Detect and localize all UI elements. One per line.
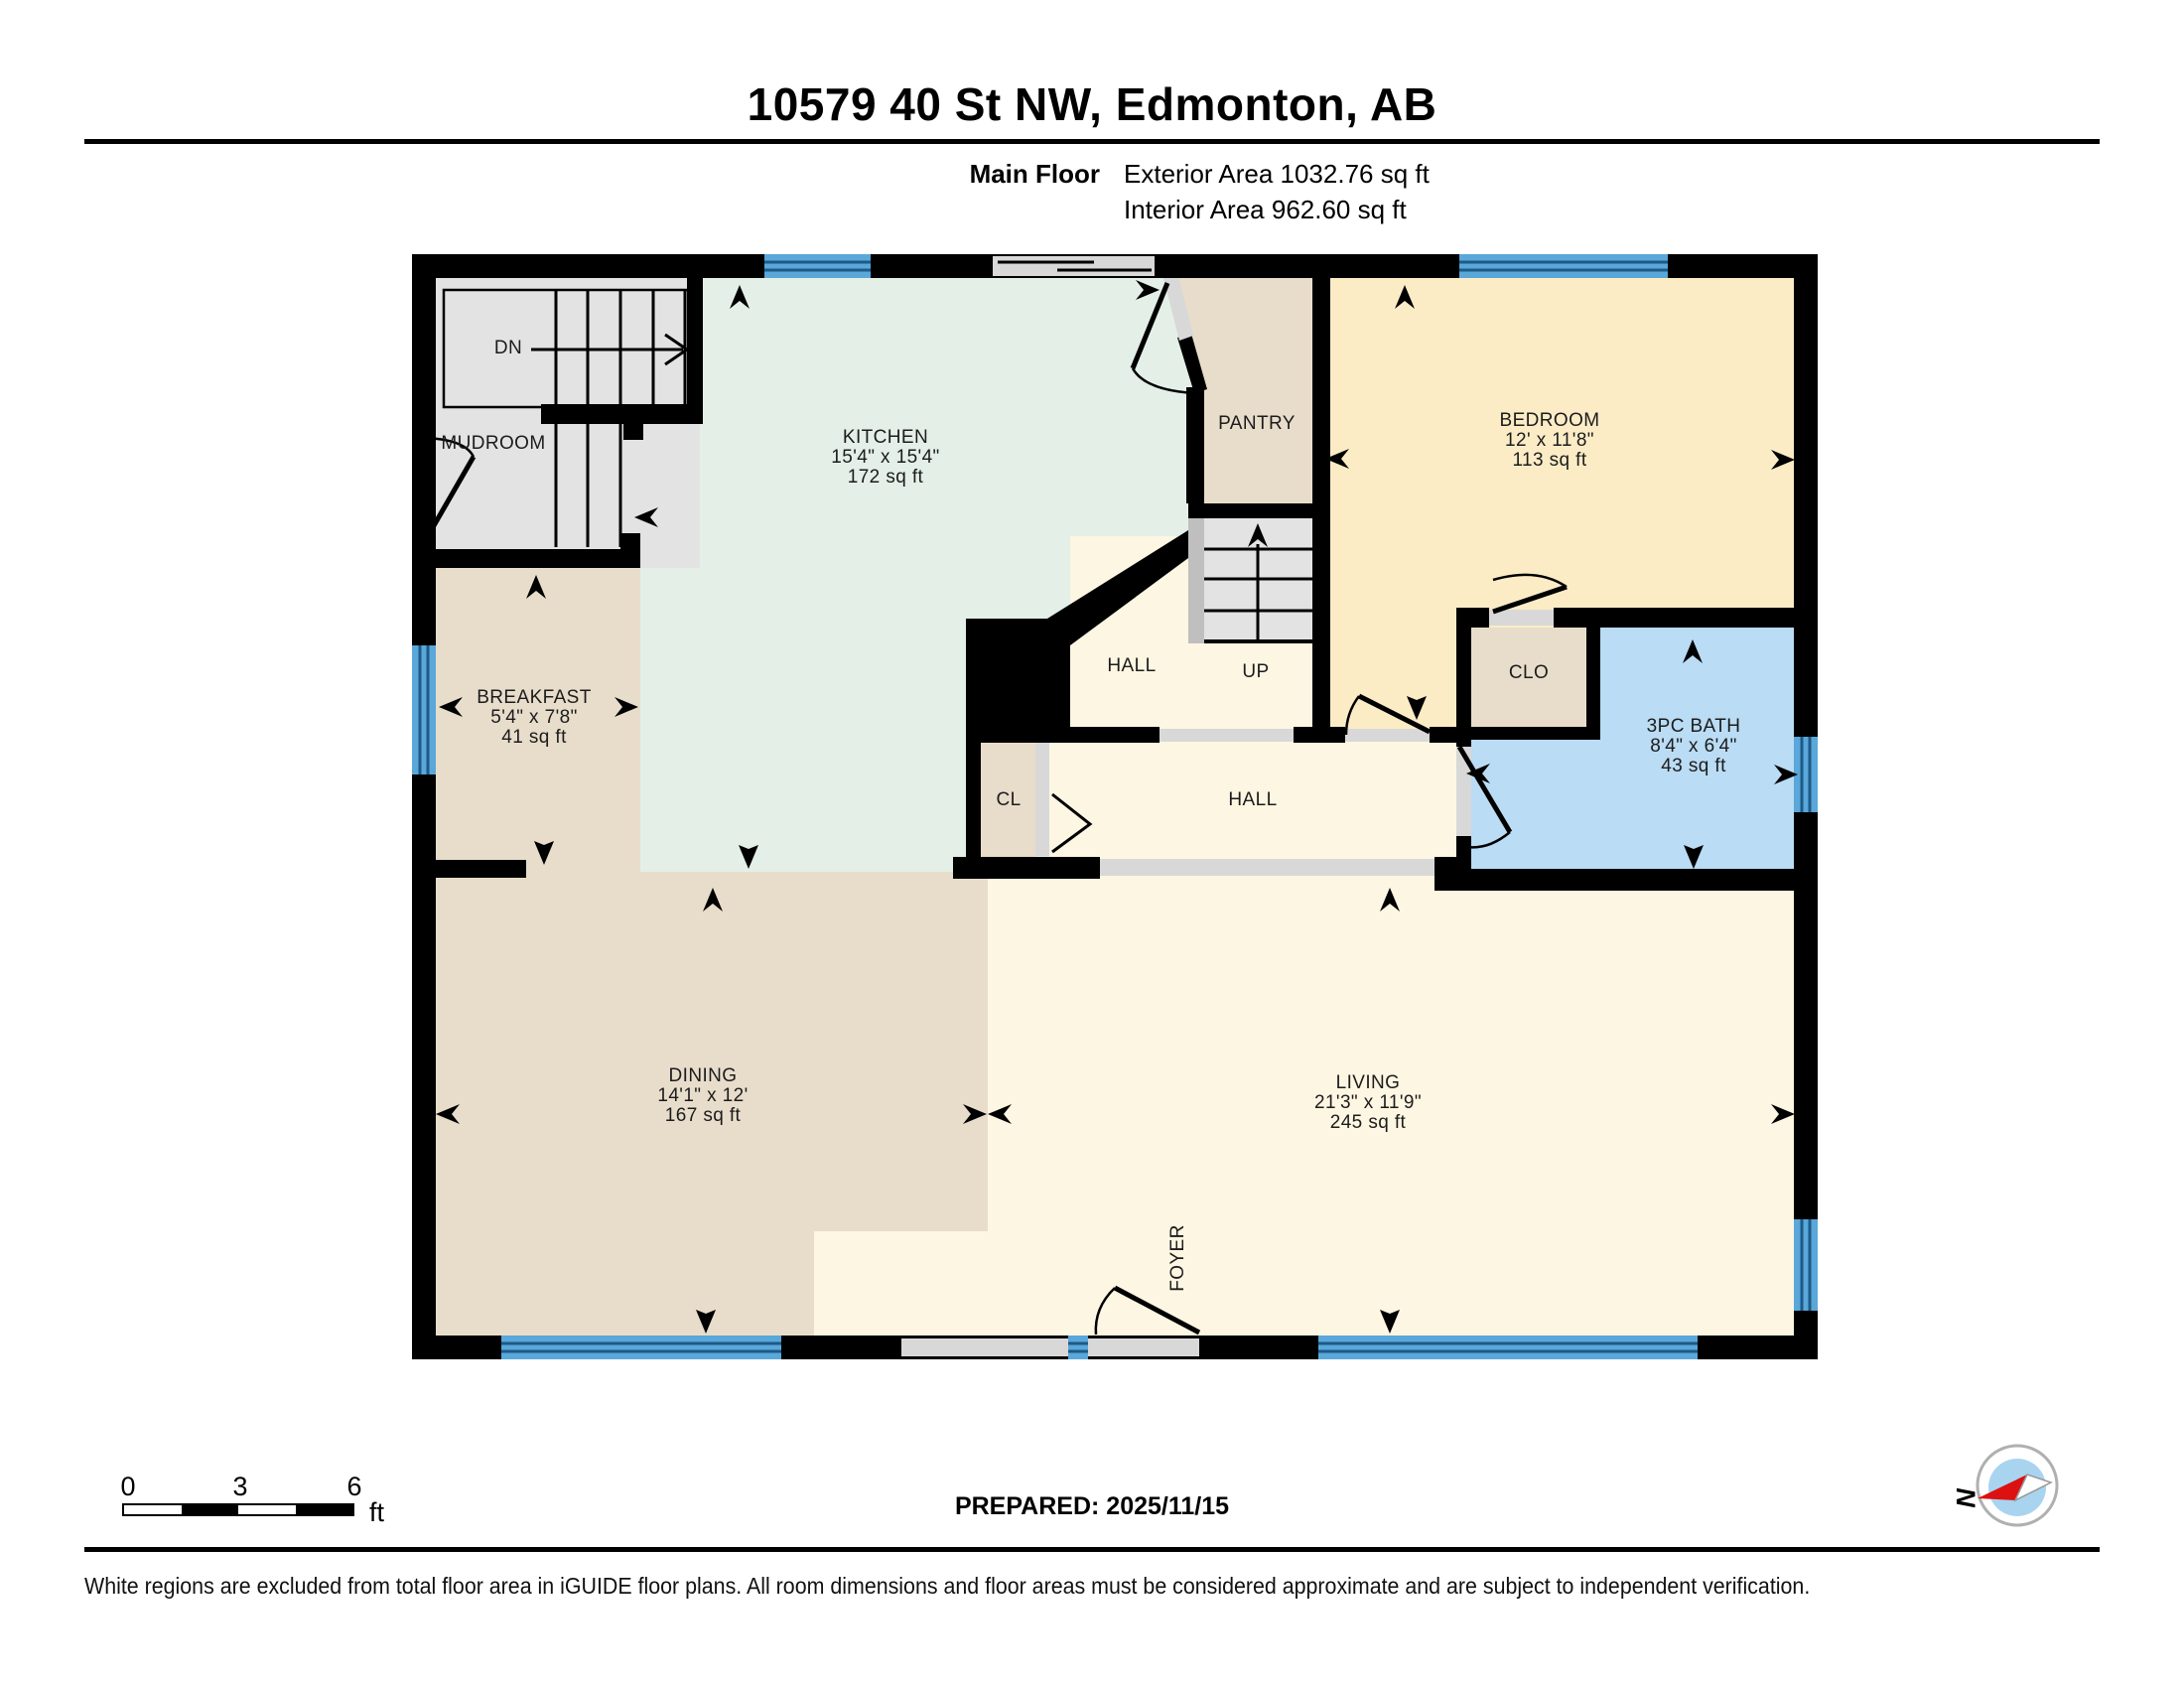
room-label-foyer: FOYER — [1168, 1224, 1188, 1291]
bedroom-passage-floor — [1330, 628, 1456, 740]
prepared-date: PREPARED: 2025/11/15 — [0, 1492, 2184, 1521]
room-label-bath: 3PC BATH8'4" x 6'4"43 sq ft — [1647, 717, 1741, 776]
stairs-up-stringer — [1188, 518, 1204, 643]
compass-north-label: N — [1952, 1488, 1982, 1508]
room-label-dining: DINING14'1" x 12'167 sq ft — [657, 1066, 748, 1126]
room-label-cl: CL — [996, 790, 1021, 810]
floorplan-page: 10579 40 St NW, Edmonton, AB Main Floor … — [0, 0, 2184, 1688]
room-label-pantry: PANTRY — [1218, 414, 1296, 434]
room-label-breakfast: BREAKFAST5'4" x 7'8"41 sq ft — [477, 688, 592, 748]
disclaimer-text: White regions are excluded from total fl… — [84, 1573, 1810, 1600]
stairs-dn-label: DN — [494, 339, 522, 358]
room-label-clo: CLO — [1509, 663, 1549, 683]
room-label-bedroom: BEDROOM12' x 11'8"113 sq ft — [1500, 411, 1600, 471]
room-label-kitchen: KITCHEN15'4" x 15'4"172 sq ft — [831, 428, 939, 488]
room-label-hall-upper: HALL — [1107, 656, 1156, 676]
footer-divider — [84, 1547, 2100, 1552]
room-label-hall-lower: HALL — [1228, 790, 1277, 810]
room-label-living: LIVING21'3" x 11'9"245 sq ft — [1314, 1073, 1422, 1133]
stairs-up-label: UP — [1242, 662, 1269, 682]
floor-plan-drawing — [0, 0, 2184, 1688]
room-label-mudroom: MUDROOM — [441, 434, 545, 454]
